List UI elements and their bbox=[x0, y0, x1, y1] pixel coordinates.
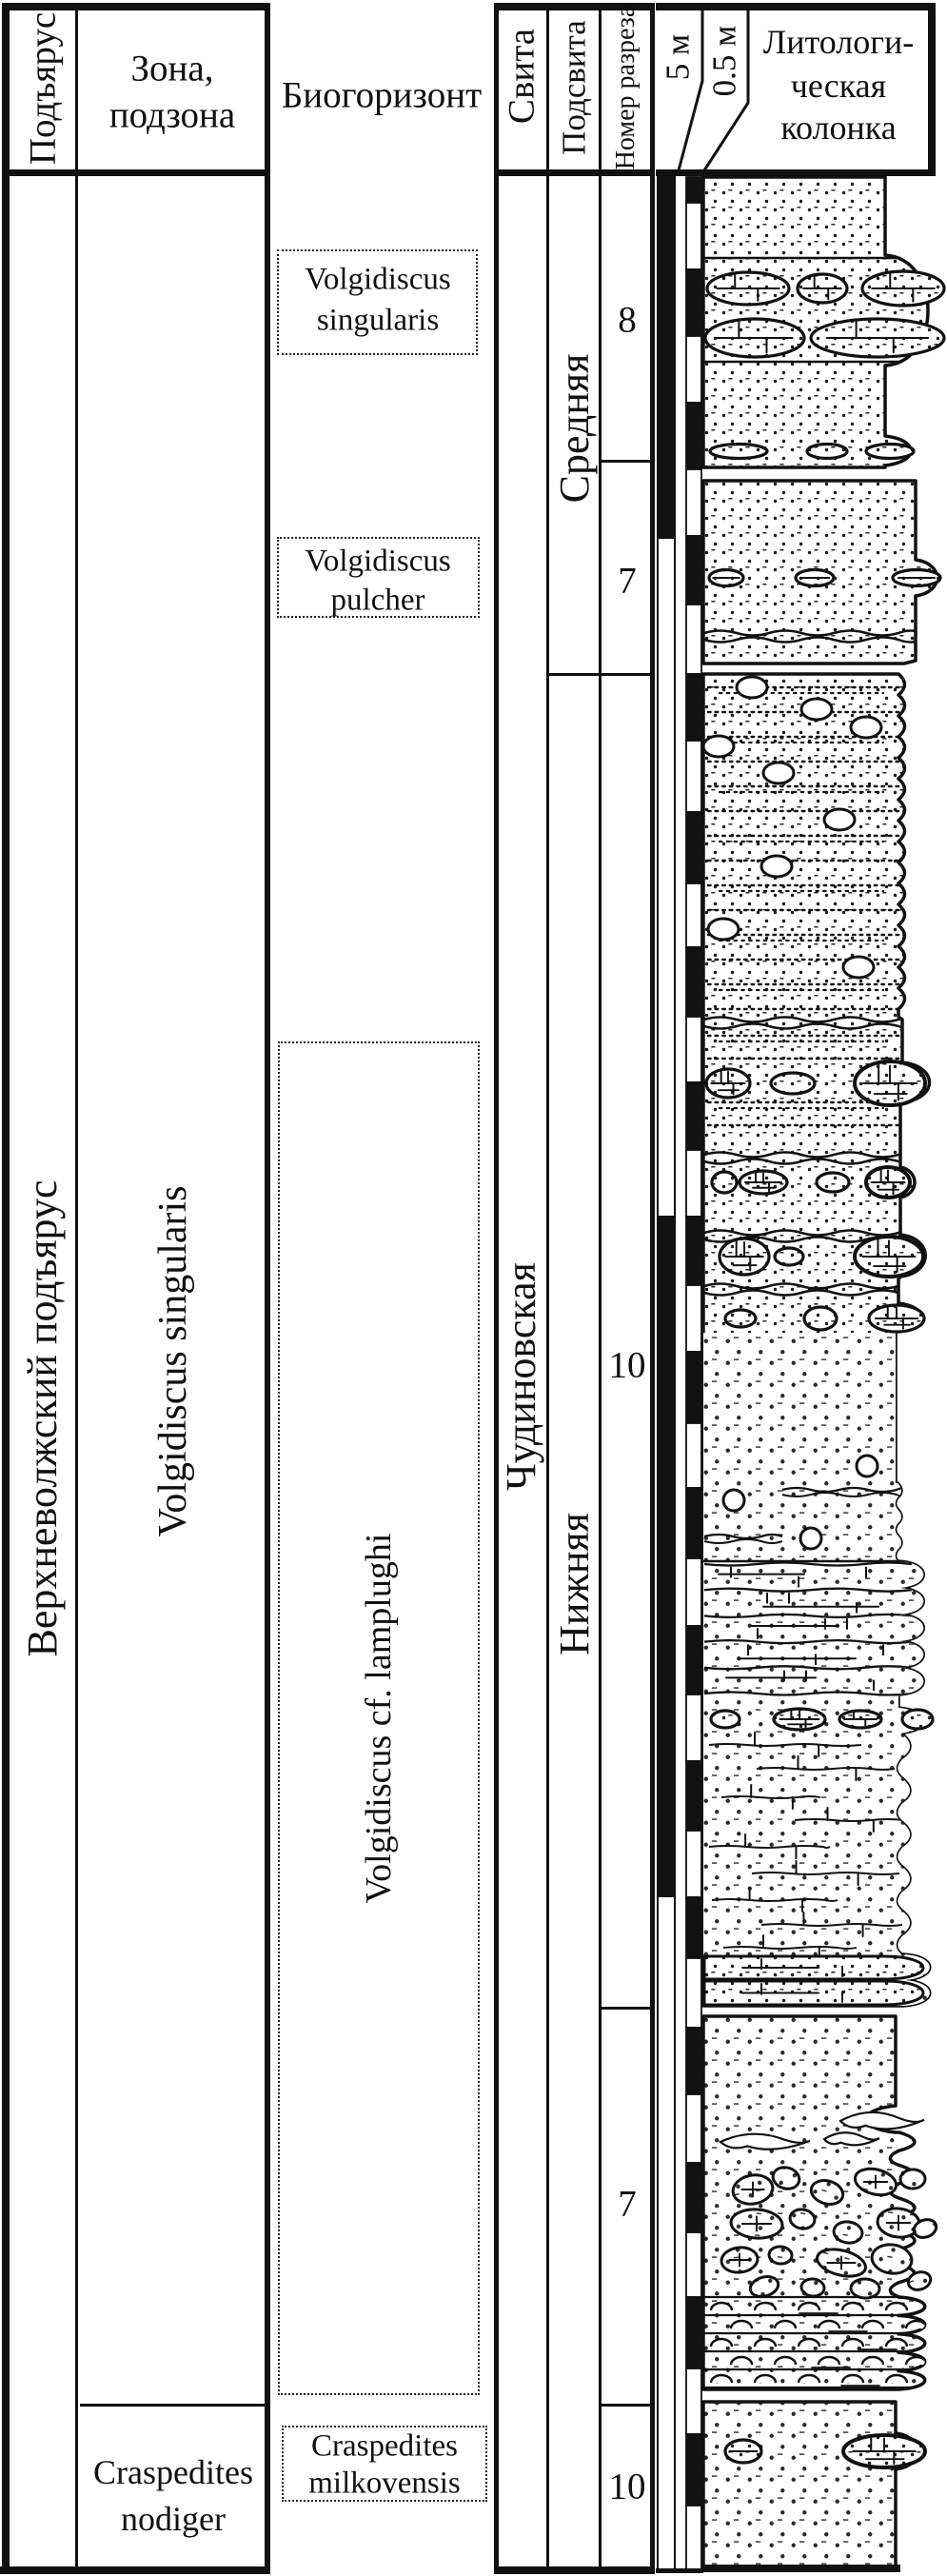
header-zone-col-line1: Зона, bbox=[131, 50, 214, 88]
section-number-1: 8 bbox=[618, 302, 637, 339]
section-number-3: 10 bbox=[609, 1347, 646, 1384]
zone-lower-label-line1: Craspedites bbox=[93, 2455, 253, 2489]
zone-lower-label-line2: nodiger bbox=[121, 2502, 226, 2536]
header-subsuite-col: Подсвита bbox=[558, 20, 591, 155]
biohorizon-singularis-line2: singularis bbox=[317, 306, 439, 337]
header-biohorizon-col: Биогоризонт bbox=[282, 77, 482, 114]
subsuite-upper-label: Средняя bbox=[554, 354, 596, 504]
biohorizon-pulcher-line2: pulcher bbox=[331, 585, 425, 617]
zone-upper-label: Volgidiscus singularis bbox=[153, 1185, 193, 1536]
section-number-2: 7 bbox=[618, 563, 637, 600]
header-section-number-col: Номер разреза bbox=[613, 6, 640, 170]
biohorizon-milkovensis-line2: milkovensis bbox=[308, 2468, 461, 2500]
biohorizon-pulcher-line1: Volgidiscus bbox=[305, 546, 450, 578]
biohorizon-milkovensis-line1: Craspedites bbox=[311, 2431, 458, 2463]
header-substage-col: Подъярус bbox=[25, 12, 62, 165]
section-number-4: 7 bbox=[618, 2186, 637, 2223]
scale-05m-label: 0.5 м bbox=[708, 26, 741, 97]
litho-header-line2: ческая bbox=[791, 69, 886, 103]
stratigraphic-column-figure: Подъярус Зона, подзона Биогоризонт Свита… bbox=[0, 0, 947, 2576]
header-zone-col-line2: подзона bbox=[109, 97, 235, 134]
litho-header-line3: колонка bbox=[780, 110, 896, 145]
section-number-5: 10 bbox=[609, 2468, 646, 2506]
scale-5m-label: 5 м bbox=[661, 34, 695, 80]
biohorizon-lamplughi-label: Volgidiscus cf. lamplughi bbox=[361, 1534, 397, 1904]
biohorizon-singularis-line1: Volgidiscus bbox=[305, 265, 450, 296]
litho-header-line1: Литологи- bbox=[763, 25, 914, 59]
substage-label: Верхневолжский подъярус bbox=[22, 1179, 64, 1656]
subsuite-lower-label: Нижняя bbox=[554, 1513, 596, 1655]
suite-label: Чудиновская bbox=[501, 1262, 543, 1491]
header-suite-col: Свита bbox=[503, 29, 541, 124]
